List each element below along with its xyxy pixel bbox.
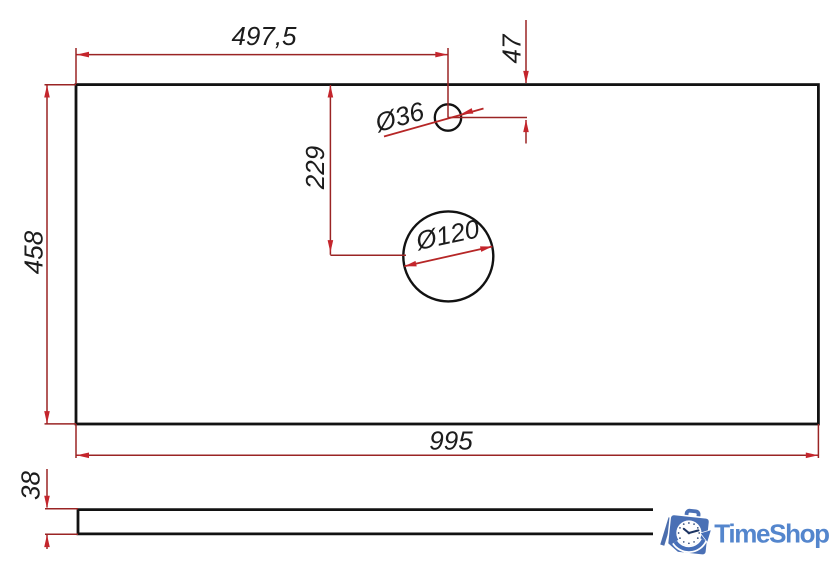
svg-text:38: 38 — [16, 471, 46, 500]
svg-text:995: 995 — [429, 426, 473, 456]
svg-text:458: 458 — [19, 230, 49, 274]
svg-text:229: 229 — [300, 146, 330, 190]
svg-text:TimeShop: TimeShop — [714, 519, 829, 549]
svg-text:47: 47 — [497, 33, 527, 63]
svg-text:Ø36: Ø36 — [371, 96, 428, 139]
svg-text:497,5: 497,5 — [231, 21, 297, 51]
